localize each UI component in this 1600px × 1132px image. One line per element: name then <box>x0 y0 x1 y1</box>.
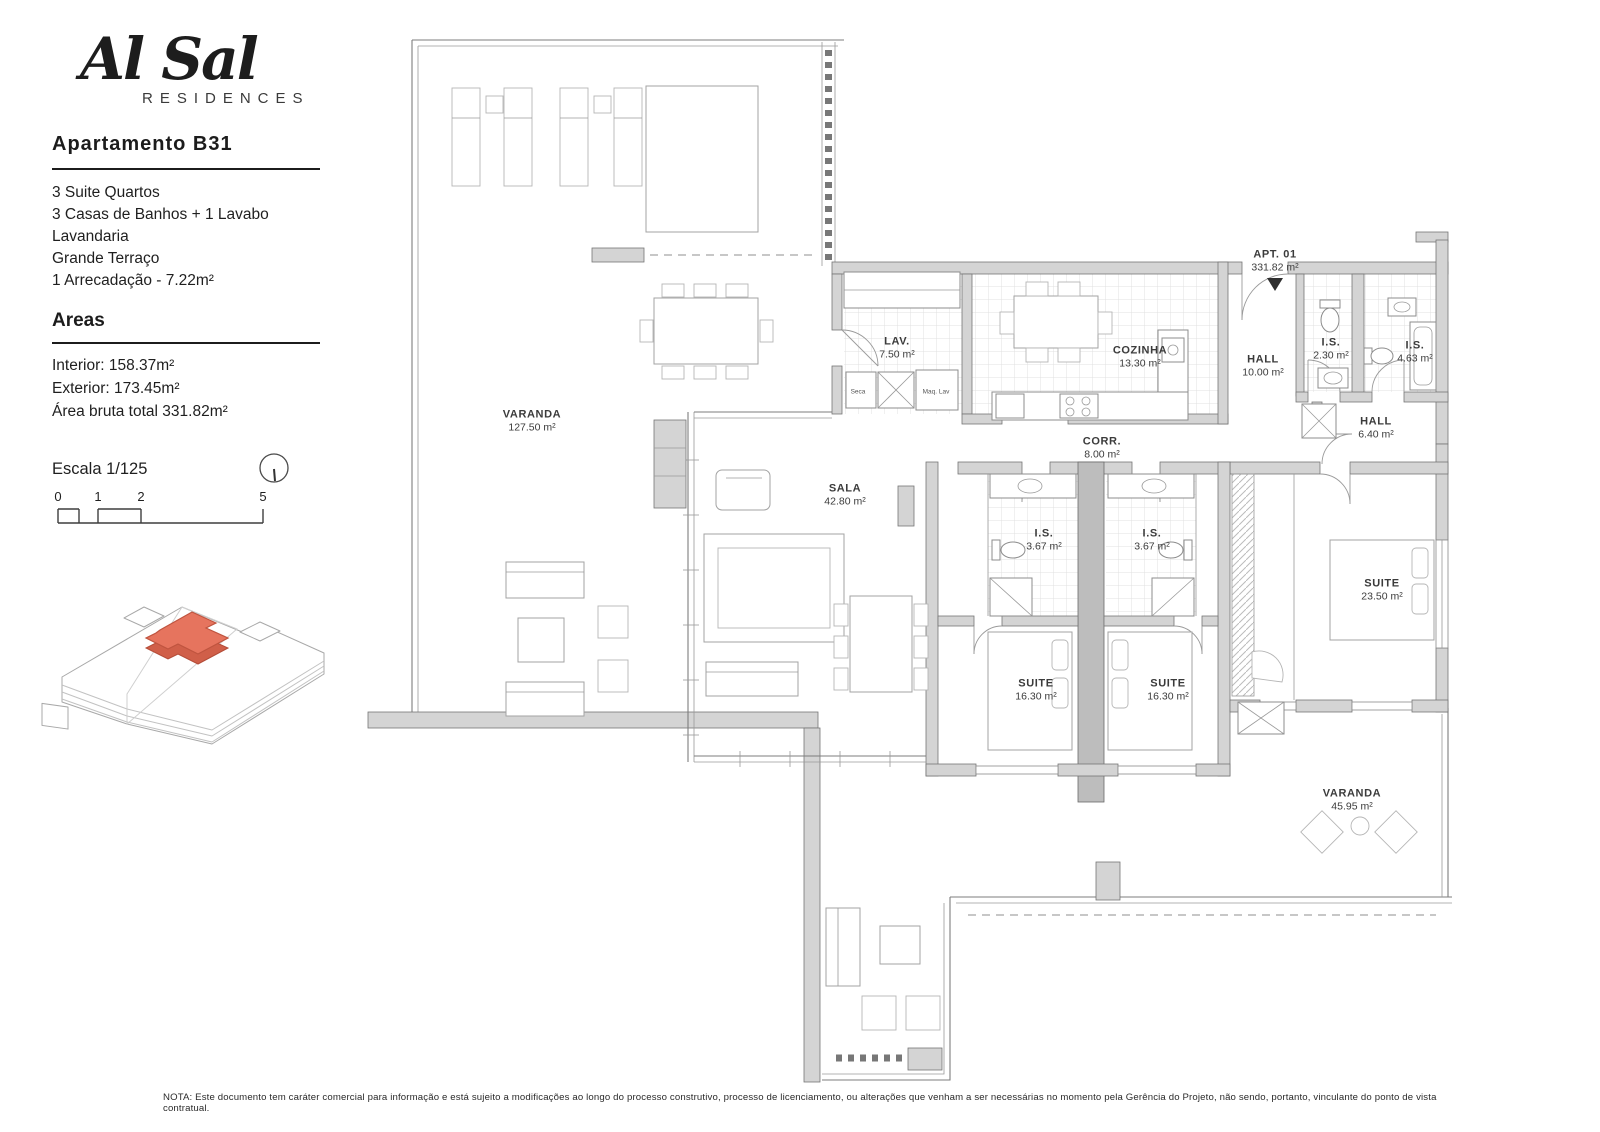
scale-bar: 0 1 2 5 <box>52 489 332 536</box>
apt-marker-arrow <box>1267 278 1283 291</box>
feature-item: Lavandaria <box>52 226 332 248</box>
area-line: Interior: 158.37m² <box>52 354 332 377</box>
brand-name: Al Sal <box>80 30 332 88</box>
svg-text:0: 0 <box>54 489 61 504</box>
feature-item: 3 Casas de Banhos + 1 Lavabo <box>52 204 332 226</box>
scale-label: Escala 1/125 <box>52 460 147 479</box>
svg-text:1: 1 <box>94 489 101 504</box>
scale-row: Escala 1/125 <box>52 451 292 487</box>
area-line: Área bruta total 331.82m² <box>52 400 332 423</box>
feature-list: 3 Suite Quartos 3 Casas de Banhos + 1 La… <box>52 182 332 292</box>
area-line: Exterior: 173.45m² <box>52 377 332 400</box>
info-panel: Al Sal RESIDENCES Apartamento B31 3 Suit… <box>52 30 332 767</box>
svg-text:2: 2 <box>137 489 144 504</box>
legal-note: NOTA: Este documento tem caráter comerci… <box>163 1092 1453 1114</box>
north-compass-icon <box>256 451 292 487</box>
areas-list: Interior: 158.37m² Exterior: 173.45m² Ár… <box>52 354 332 423</box>
areas-title: Areas <box>52 310 320 344</box>
furniture <box>452 86 1434 1030</box>
feature-item: Grande Terraço <box>52 248 332 270</box>
feature-item: 1 Arrecadação - 7.22m² <box>52 270 332 292</box>
feature-item: 3 Suite Quartos <box>52 182 332 204</box>
brand-logo: Al Sal RESIDENCES <box>52 30 332 107</box>
apartment-title: Apartamento B31 <box>52 133 320 170</box>
building-locator <box>32 552 332 767</box>
page: APT. 01331.82 m²VARANDA127.50 m²LAV.7.50… <box>0 0 1600 1132</box>
svg-text:5: 5 <box>259 489 266 504</box>
